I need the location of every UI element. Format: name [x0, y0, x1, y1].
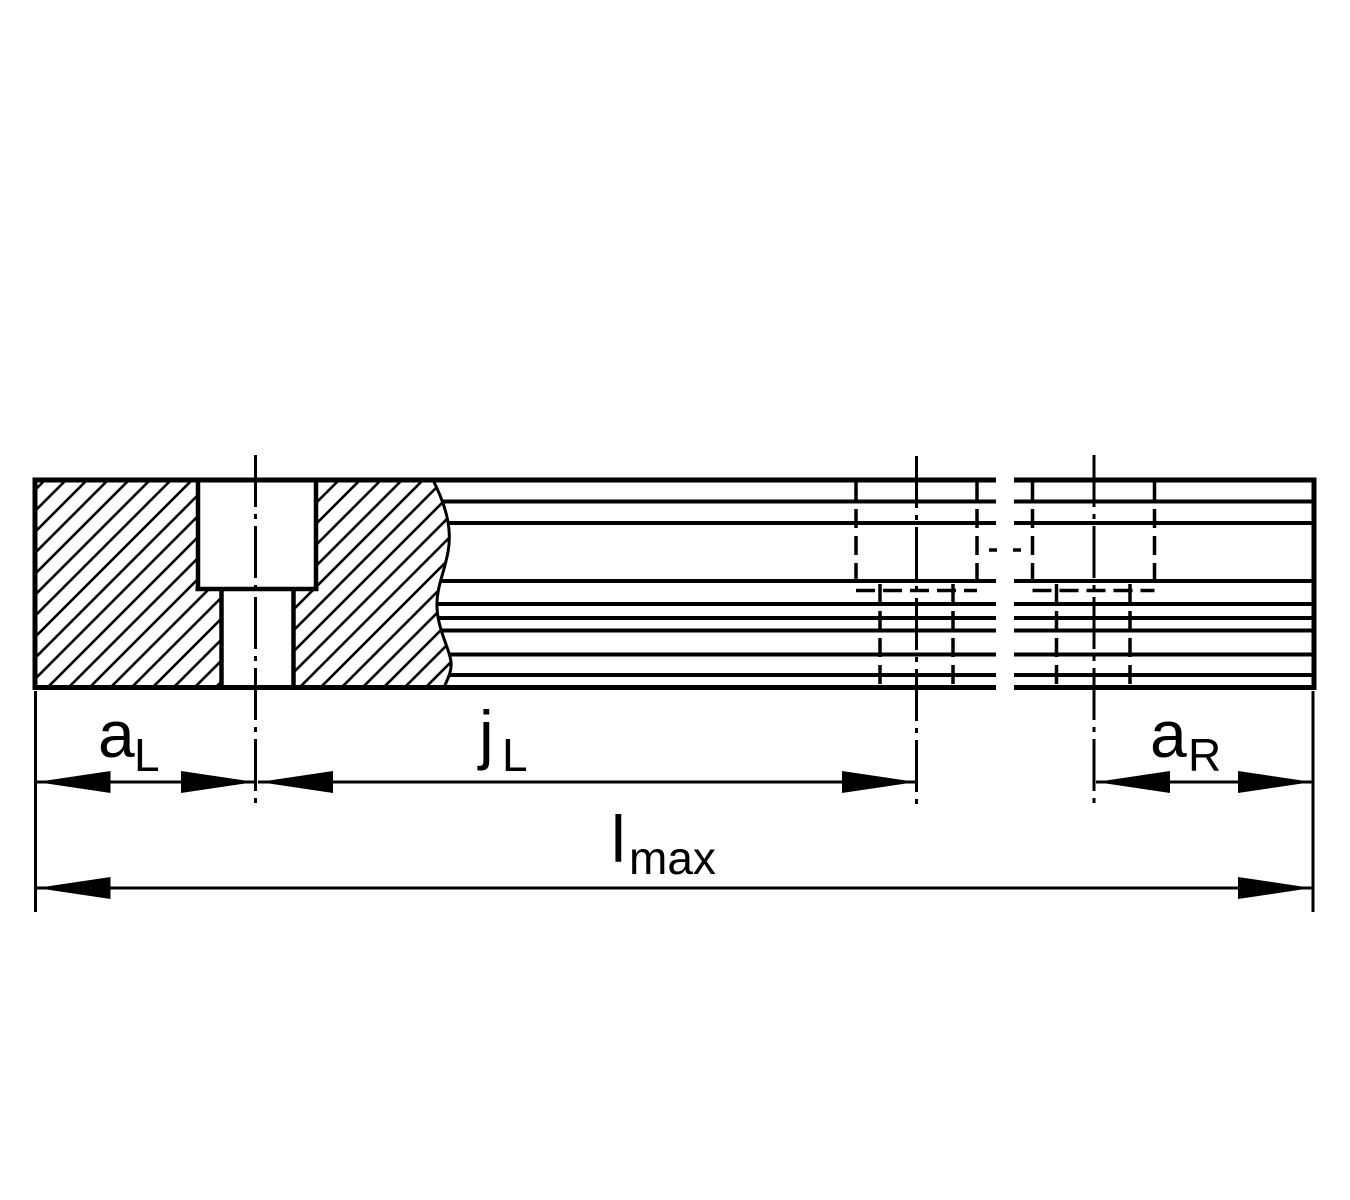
label-a-right-subscript: R	[1188, 729, 1221, 781]
label-a-right: a	[1150, 697, 1187, 771]
drawing-canvas: a L j L a R l max	[0, 0, 1350, 1200]
label-j-left: j	[477, 697, 494, 771]
label-l-max-subscript: max	[629, 832, 716, 884]
rail-technical-drawing: a L j L a R l max	[0, 0, 1350, 1200]
label-j-left-subscript: L	[502, 729, 528, 781]
label-l-max: l	[611, 802, 626, 876]
label-a-left: a	[98, 697, 135, 771]
label-a-left-subscript: L	[134, 729, 160, 781]
through-hole	[222, 589, 294, 685]
